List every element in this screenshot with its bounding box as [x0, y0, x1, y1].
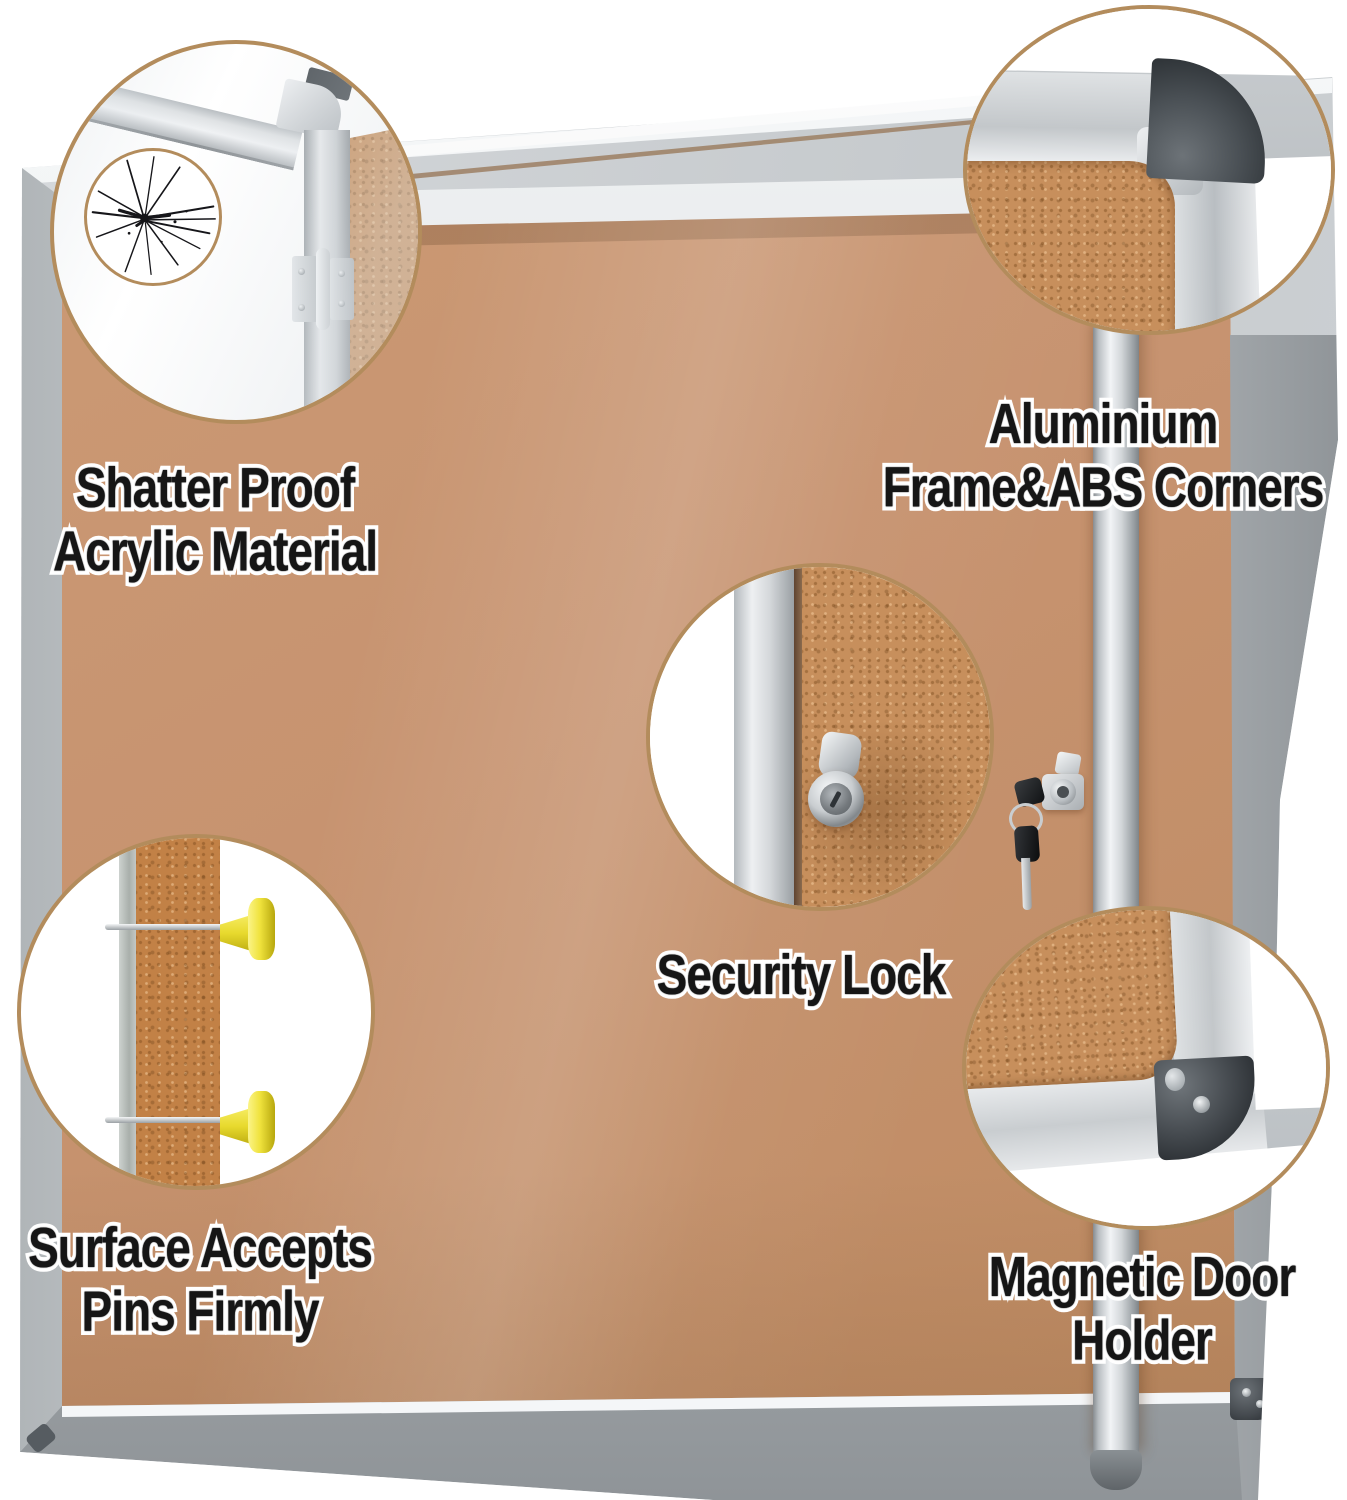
label-line: Aluminium [883, 392, 1324, 455]
feature-label-aluminium-frame: Aluminium Frame&ABS Corners [883, 392, 1324, 519]
background-above-frame [963, 5, 1335, 77]
label-line: Security Lock [657, 943, 946, 1006]
lock-shadow [770, 717, 990, 907]
background-right-of-frame [1248, 906, 1330, 1110]
cork-cross-section [136, 838, 220, 1186]
background-right-of-frame [1254, 155, 1335, 335]
callout-shatter-proof [50, 40, 422, 424]
feature-label-security-lock: Security Lock [657, 943, 946, 1006]
label-line: Frame&ABS Corners [883, 455, 1324, 518]
corner-screw [1193, 1096, 1210, 1113]
pushpin-head [248, 898, 275, 960]
callout-magnetic-holder [962, 906, 1330, 1230]
callout-security-lock [646, 563, 994, 911]
lock-keyhole [1057, 786, 1069, 798]
label-line: Shatter Proof [53, 456, 377, 519]
callout-aluminium-corner [963, 5, 1335, 335]
pushpin-icon [220, 912, 250, 954]
label-line: Holder [989, 1308, 1295, 1371]
pushpin-icon [220, 1105, 250, 1147]
feature-label-shatter-proof: Shatter Proof Acrylic Material [53, 456, 377, 583]
product-feature-image: Shatter Proof Acrylic Material Aluminium… [0, 0, 1347, 1500]
label-line: Acrylic Material [53, 519, 377, 582]
pin-needle [105, 924, 227, 930]
spare-key-blade [1021, 858, 1032, 910]
label-line: Magnetic Door [989, 1245, 1295, 1308]
board-backing-strip [119, 838, 136, 1186]
background-left [650, 567, 734, 907]
pushpin-head [248, 1091, 275, 1153]
label-line: Pins Firmly [28, 1279, 372, 1342]
pin-needle [105, 1117, 227, 1123]
label-line: Surface Accepts [28, 1216, 372, 1279]
callout-pin-surface [17, 834, 375, 1190]
magnet-icon [1165, 1068, 1185, 1091]
crack-detail-circle [84, 148, 222, 286]
cracked-glass-icon [87, 151, 219, 283]
feature-label-magnetic-door: Magnetic Door Holder [989, 1245, 1295, 1372]
cork-zoom-area [962, 906, 1179, 1090]
corner-screw [1242, 1388, 1251, 1397]
cork-zoom-area [963, 161, 1175, 335]
feature-label-surface-pins: Surface Accepts Pins Firmly [28, 1216, 372, 1343]
